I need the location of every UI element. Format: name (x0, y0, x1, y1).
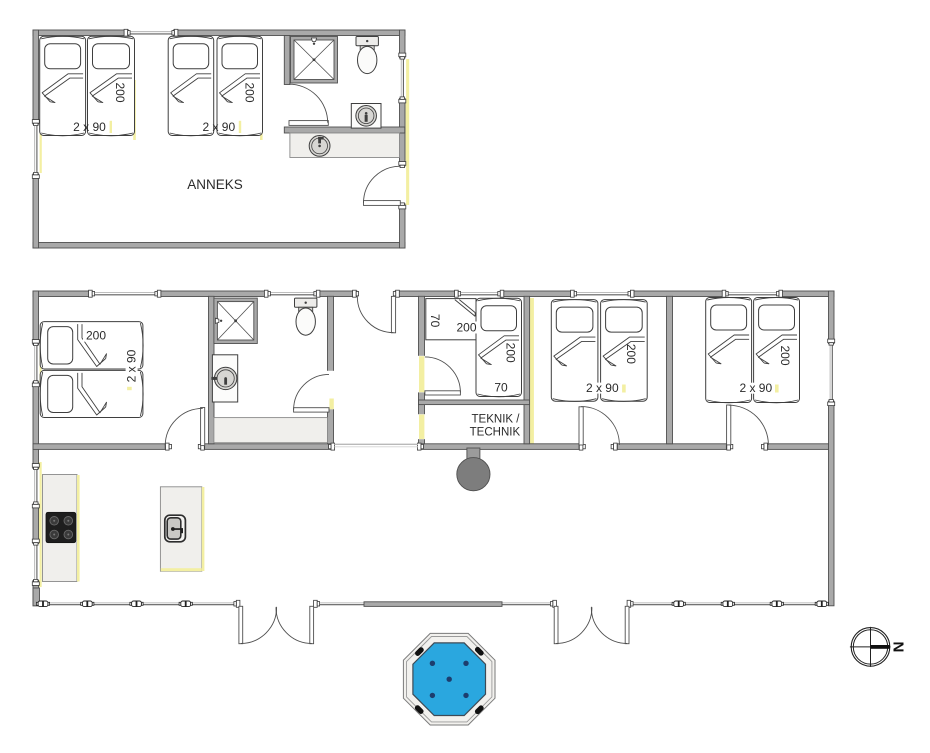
svg-text:200: 200 (243, 82, 257, 102)
svg-text:TECHNIK: TECHNIK (470, 426, 521, 438)
svg-text:200: 200 (504, 343, 518, 363)
svg-text:TEKNIK /: TEKNIK / (472, 414, 521, 426)
svg-text:2 x 90: 2 x 90 (125, 349, 139, 382)
svg-text:200: 200 (456, 321, 476, 335)
svg-text:200: 200 (624, 344, 638, 364)
svg-text:200: 200 (113, 82, 127, 102)
svg-text:70: 70 (494, 381, 508, 395)
svg-text:ANNEKS: ANNEKS (187, 177, 243, 192)
svg-text:2 x 90: 2 x 90 (586, 381, 619, 395)
svg-text:200: 200 (86, 329, 106, 343)
svg-text:2 x 90: 2 x 90 (73, 120, 106, 134)
svg-text:2 x 90: 2 x 90 (202, 120, 235, 134)
svg-text:200: 200 (778, 345, 792, 365)
svg-text:N: N (890, 641, 907, 652)
svg-text:70: 70 (428, 314, 442, 328)
svg-text:2 x 90: 2 x 90 (739, 381, 772, 395)
